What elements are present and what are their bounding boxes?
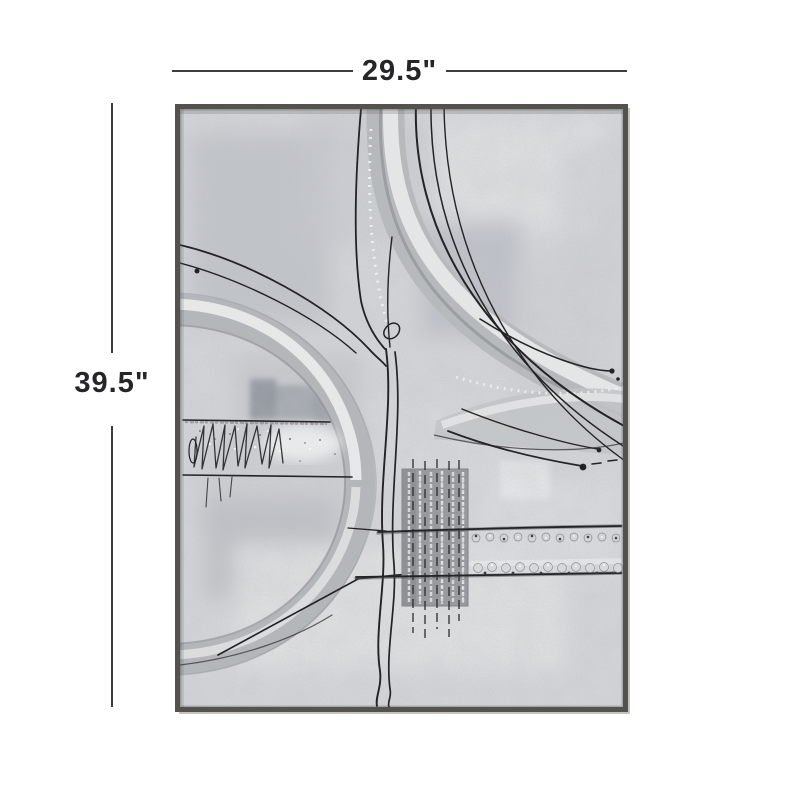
canvas-overlay-grain [180,109,623,707]
framed-artwork [175,104,628,712]
height-dimension-line-bottom [111,426,113,707]
height-dimension-label: 39.5" [74,367,149,399]
width-dimension: 29.5" [172,54,627,88]
artwork-canvas [180,109,623,707]
product-dimension-diagram: 29.5" 39.5" [0,0,800,800]
width-dimension-line-left [172,70,353,72]
width-dimension-label: 29.5" [362,57,437,86]
width-dimension-line-right [446,70,627,72]
height-dimension-line-top [111,103,113,353]
